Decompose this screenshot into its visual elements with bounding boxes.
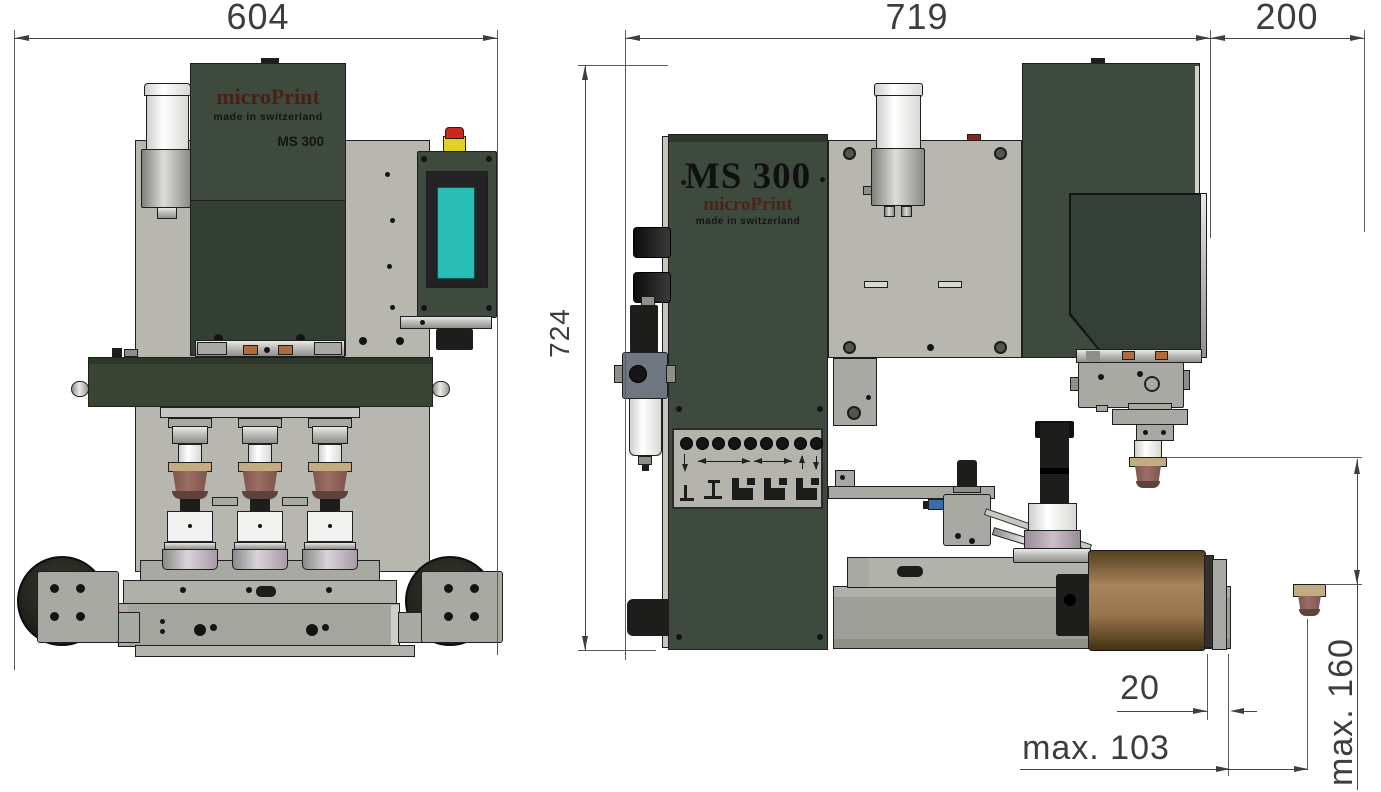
screw-dot [1137, 371, 1143, 377]
arm-stub [835, 470, 855, 487]
screw-dot [1143, 430, 1148, 435]
arrowhead [1230, 708, 1244, 714]
arrow-icon [742, 458, 750, 464]
screw-dot [676, 634, 682, 640]
regulator-tab [666, 365, 676, 383]
screw-dot [817, 634, 823, 640]
pictogram [771, 488, 785, 500]
knob-icon [728, 437, 741, 450]
screw [843, 147, 856, 160]
up-arrow-icon [799, 455, 805, 463]
head-sliding-cover-face [1071, 195, 1206, 357]
panel-slot [864, 281, 888, 288]
screw [994, 341, 1007, 354]
knob-icon [776, 437, 789, 450]
dimension-line [625, 38, 1210, 39]
dim-max-stroke: max. 103 [1011, 731, 1181, 765]
valve-block [630, 305, 658, 353]
knob-icon [680, 437, 693, 450]
copper-pad [1155, 351, 1168, 360]
arrowhead [1211, 35, 1225, 41]
model-label: MS 300 [672, 155, 824, 198]
filter-drain-tip [642, 465, 649, 471]
holder-stub [863, 186, 872, 195]
arrowhead [1216, 766, 1230, 772]
origin-label: made in switzerland [672, 216, 824, 227]
copper-pad [1122, 351, 1135, 360]
dim-side-width: 719 [857, 0, 977, 34]
table-slot [897, 566, 923, 577]
pictogram [811, 478, 819, 485]
screw-dot [866, 395, 871, 400]
arrowhead [626, 35, 640, 41]
pictogram [704, 496, 722, 499]
regulator-tab [614, 365, 623, 383]
dim-max-pad-height: max. 160 [1323, 627, 1359, 792]
knob-icon [696, 437, 709, 450]
pictogram [764, 478, 771, 500]
dim-pad-clearance: 20 [1100, 672, 1180, 704]
arrowhead [1193, 708, 1207, 714]
conveyor-roller [1088, 550, 1206, 651]
printing-pad-tip [1136, 481, 1160, 488]
rear-foot [627, 599, 669, 636]
indicator-strip [967, 134, 981, 141]
roller-flange [1212, 559, 1227, 650]
pictogram [739, 488, 753, 500]
arrow-icon [784, 458, 792, 464]
pivot-dot [955, 533, 961, 539]
ink-cup-holder [871, 148, 925, 206]
lever-block [943, 494, 991, 546]
carriage-port [1144, 376, 1160, 392]
knob-icon [760, 437, 773, 450]
screw [847, 406, 861, 420]
arrowhead [1354, 460, 1360, 474]
knob-icon [744, 437, 757, 450]
pictogram [779, 478, 787, 485]
regulator-dial [629, 365, 647, 383]
spare-pad-cap [1293, 584, 1326, 597]
motor-hub [1064, 594, 1076, 606]
connector-knob [633, 227, 671, 258]
extension-line [625, 30, 626, 660]
arrowhead [1354, 570, 1360, 584]
down-arrow-icon [682, 464, 688, 472]
pictogram [712, 483, 715, 497]
dimension-line [1020, 769, 1308, 770]
technical-drawing-canvas: microPrint made in switzerland MS 300 [0, 0, 1381, 792]
dim-side-offset: 200 [1227, 0, 1347, 34]
knob-icon [712, 437, 725, 450]
pad-clamp [1136, 424, 1174, 441]
pivot-dot [969, 538, 975, 544]
blue-thumb-screw [928, 499, 944, 510]
side-top-panel [828, 140, 1022, 358]
carriage-notch [1096, 405, 1108, 412]
screw-dot [840, 475, 845, 480]
clamp-flange [1024, 530, 1081, 550]
strip-block [1086, 351, 1100, 361]
pictogram [796, 478, 803, 500]
cover-edge [1200, 193, 1207, 358]
ink-cup-cylinder [876, 95, 921, 150]
table-step [848, 558, 869, 587]
clamp-post [1028, 503, 1077, 532]
pad-ring [1129, 457, 1167, 467]
knob-flange [953, 486, 981, 493]
dimension-tail [1243, 711, 1257, 712]
arrowhead [1294, 766, 1308, 772]
screw-dot [927, 344, 934, 351]
down-arrow-icon [813, 462, 819, 470]
extension-line [1364, 30, 1365, 232]
arrow-icon [698, 458, 706, 464]
dimension-line [1210, 38, 1364, 39]
clamp-cylinder [1040, 423, 1069, 506]
extension-line [1207, 654, 1208, 720]
knob-icon [794, 437, 807, 450]
screw-dot [1161, 430, 1166, 435]
screw [994, 147, 1007, 160]
pictogram [732, 478, 739, 500]
arrowhead [1350, 35, 1364, 41]
pictogram [680, 498, 694, 501]
panel-slot [938, 281, 962, 288]
filter-bowl [629, 398, 662, 456]
holder-foot [901, 206, 912, 217]
filter-drain [638, 456, 652, 465]
arrowhead [1196, 35, 1210, 41]
spare-pad-tip [1299, 609, 1320, 616]
extension-line [1166, 457, 1362, 458]
pad-center-line [1307, 619, 1308, 770]
screw-dot [676, 406, 682, 412]
side-nameplate: MS 300 microPrint made in switzerland [672, 155, 824, 227]
side-view: MS 300 microPrint made in switzerland [0, 0, 1381, 792]
pad-carriage [1078, 362, 1184, 408]
holder-foot [884, 206, 895, 217]
knob-icon [810, 437, 823, 450]
head-sliding-cover [1069, 193, 1207, 358]
clamp-base-disc [1013, 548, 1091, 563]
mount-plate [1112, 409, 1188, 425]
column-top-edge [669, 135, 827, 142]
arm-knob [957, 460, 977, 488]
screw-dot [1098, 374, 1104, 380]
extension-line [1228, 654, 1229, 776]
extension-line [1210, 30, 1211, 238]
screw [843, 341, 856, 354]
pictogram [684, 485, 687, 499]
pictogram [803, 488, 817, 500]
cylinder-band [1040, 468, 1069, 474]
pictogram [747, 478, 755, 485]
instruction-panel [672, 428, 823, 509]
screw-dot [817, 406, 823, 412]
arrow-icon [754, 458, 762, 464]
